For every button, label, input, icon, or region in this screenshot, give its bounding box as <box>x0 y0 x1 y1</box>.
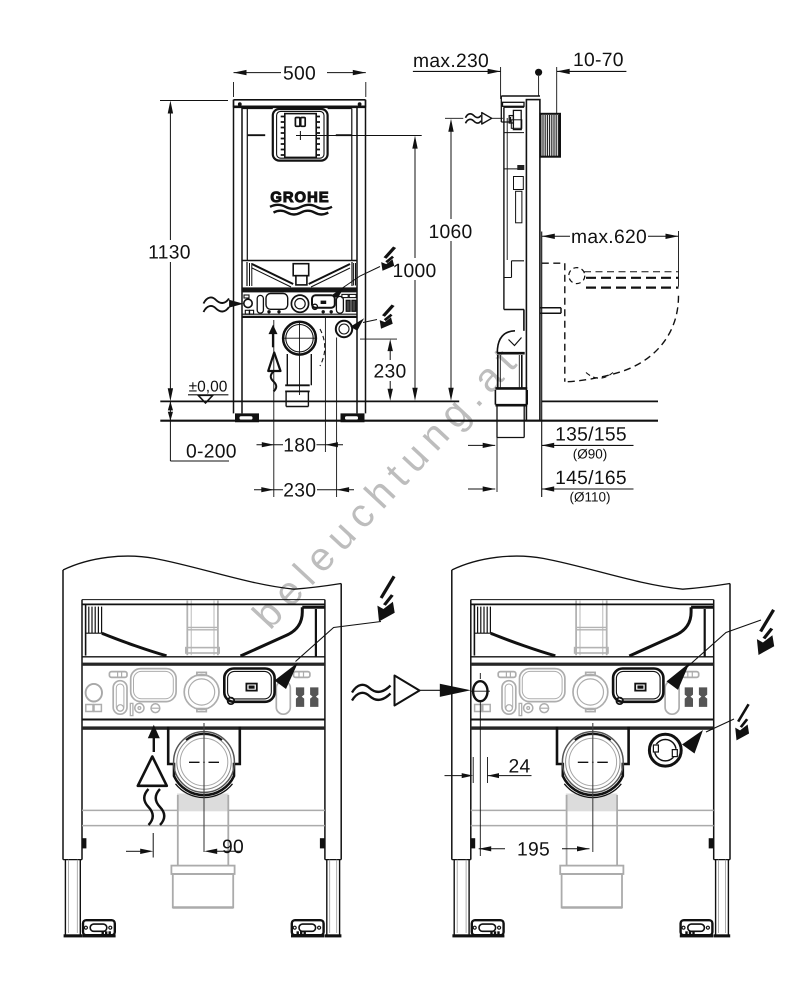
svg-text:230: 230 <box>283 481 316 502</box>
svg-text:24: 24 <box>508 757 530 778</box>
svg-text:(Ø110): (Ø110) <box>569 490 610 505</box>
svg-text:145/165: 145/165 <box>555 468 627 489</box>
svg-text:195: 195 <box>517 840 550 861</box>
svg-text:max.230: max.230 <box>413 51 489 72</box>
svg-text:0-200: 0-200 <box>186 442 237 463</box>
svg-text:1000: 1000 <box>392 261 436 282</box>
svg-text:135/155: 135/155 <box>555 425 627 446</box>
svg-text:GROHE: GROHE <box>270 190 329 206</box>
svg-text:500: 500 <box>283 64 316 85</box>
svg-text:±0,00: ±0,00 <box>189 379 228 396</box>
svg-text:(Ø90): (Ø90) <box>573 447 608 462</box>
svg-text:1130: 1130 <box>148 243 191 264</box>
svg-text:1060: 1060 <box>428 222 472 243</box>
svg-text:90: 90 <box>222 837 244 858</box>
svg-text:230: 230 <box>373 362 406 383</box>
svg-text:10-70: 10-70 <box>573 50 624 71</box>
svg-text:max.620: max.620 <box>571 227 647 248</box>
svg-text:180: 180 <box>283 436 316 457</box>
